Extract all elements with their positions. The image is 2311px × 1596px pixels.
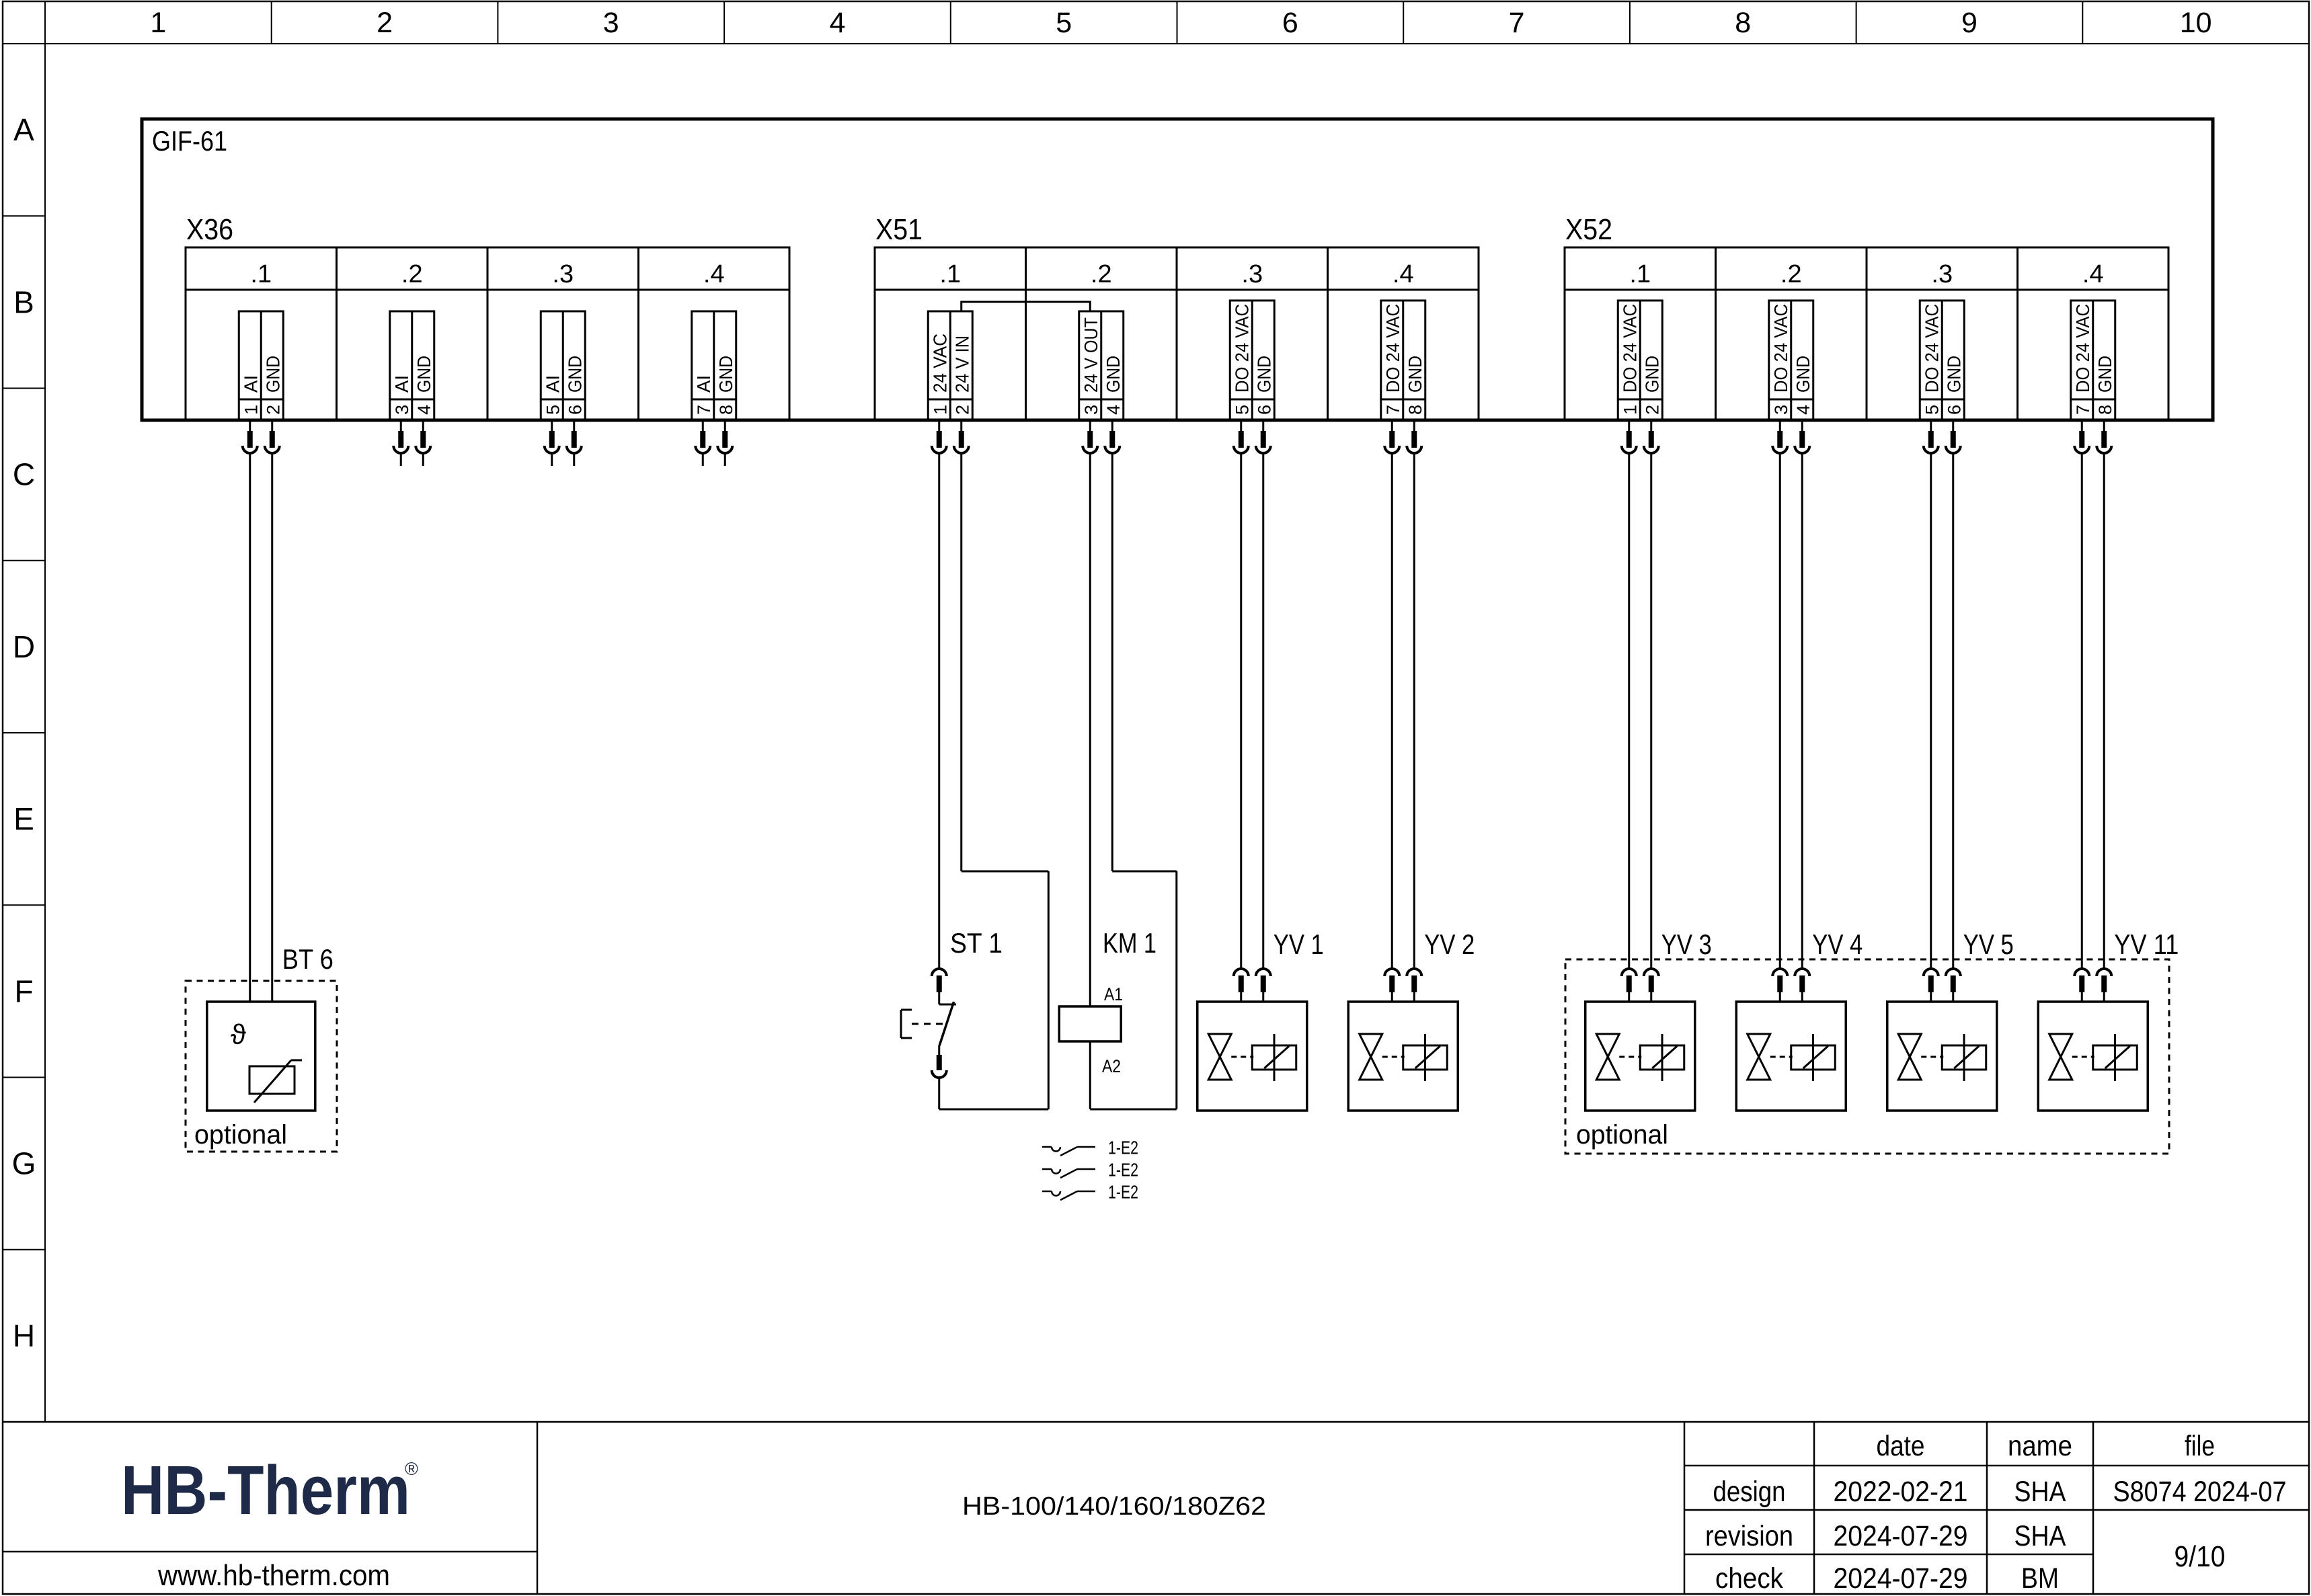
- svg-text:2024-07-29: 2024-07-29: [1834, 1562, 1968, 1595]
- svg-text:6: 6: [1282, 7, 1298, 39]
- svg-text:10: 10: [2180, 7, 2212, 39]
- svg-text:.2: .2: [1091, 260, 1112, 288]
- svg-text:E: E: [13, 801, 34, 836]
- svg-text:D: D: [13, 629, 35, 664]
- svg-text:BT 6: BT 6: [282, 943, 334, 975]
- svg-text:2022-02-21: 2022-02-21: [1834, 1476, 1968, 1508]
- svg-text:.4: .4: [1393, 260, 1414, 288]
- svg-text:A2: A2: [1102, 1056, 1121, 1076]
- svg-text:3: 3: [1081, 405, 1101, 415]
- svg-text:HB-100/140/160/180Z62: HB-100/140/160/180Z62: [962, 1492, 1266, 1521]
- svg-text:design: design: [1713, 1476, 1786, 1508]
- svg-text:GND: GND: [1943, 356, 1964, 393]
- svg-text:.4: .4: [703, 260, 725, 288]
- svg-text:X36: X36: [186, 213, 233, 246]
- svg-text:H: H: [13, 1318, 35, 1353]
- svg-text:2024-07-29: 2024-07-29: [1834, 1520, 1968, 1552]
- svg-text:5: 5: [1232, 405, 1252, 415]
- svg-text:DO 24 VAC: DO 24 VAC: [1921, 304, 1942, 393]
- svg-text:A1: A1: [1104, 984, 1123, 1004]
- svg-text:7: 7: [694, 405, 714, 415]
- svg-text:YV 1: YV 1: [1274, 928, 1324, 960]
- svg-text:A: A: [13, 112, 34, 147]
- svg-text:5: 5: [1056, 7, 1072, 39]
- svg-text:.1: .1: [939, 260, 961, 288]
- svg-text:4: 4: [829, 7, 845, 39]
- svg-text:6: 6: [565, 405, 585, 415]
- svg-text:24 V IN: 24 V IN: [951, 335, 972, 393]
- svg-text:.4: .4: [2082, 260, 2104, 288]
- svg-text:.1: .1: [250, 260, 272, 288]
- svg-text:AI: AI: [693, 375, 714, 393]
- svg-text:GND: GND: [414, 356, 434, 393]
- svg-text:X51: X51: [875, 213, 923, 246]
- svg-text:GND: GND: [1253, 356, 1274, 393]
- svg-text:®: ®: [405, 1459, 418, 1479]
- svg-text:optional: optional: [1576, 1120, 1668, 1150]
- svg-text:24 VAC: 24 VAC: [929, 333, 950, 393]
- svg-text:SHA: SHA: [2014, 1520, 2066, 1552]
- svg-text:2: 2: [1642, 405, 1662, 415]
- svg-text:4: 4: [1103, 405, 1124, 415]
- svg-text:24 V OUT: 24 V OUT: [1081, 317, 1101, 393]
- svg-text:X52: X52: [1565, 213, 1612, 246]
- svg-text:F: F: [14, 973, 33, 1008]
- svg-text:YV 5: YV 5: [1963, 928, 2014, 960]
- svg-text:4: 4: [414, 405, 434, 415]
- svg-text:.2: .2: [401, 260, 423, 288]
- svg-text:AI: AI: [240, 375, 261, 393]
- svg-text:2: 2: [952, 405, 972, 415]
- svg-text:GIF-61: GIF-61: [152, 125, 227, 157]
- svg-text:1: 1: [1620, 405, 1640, 415]
- svg-text:2: 2: [377, 7, 393, 39]
- svg-text:GND: GND: [262, 356, 283, 393]
- svg-text:8: 8: [716, 405, 736, 415]
- svg-text:5: 5: [1922, 405, 1942, 415]
- svg-text:GND: GND: [2094, 356, 2115, 393]
- svg-text:3: 3: [392, 405, 412, 415]
- svg-text:HB-Therm: HB-Therm: [121, 1451, 410, 1529]
- svg-text:3: 3: [603, 7, 619, 39]
- svg-text:.1: .1: [1629, 260, 1651, 288]
- svg-text:GND: GND: [1405, 356, 1425, 393]
- svg-text:1-E2: 1-E2: [1108, 1138, 1138, 1158]
- svg-text:8: 8: [1735, 7, 1751, 39]
- svg-text:.3: .3: [552, 260, 574, 288]
- svg-text:.2: .2: [1780, 260, 1802, 288]
- svg-text:7: 7: [2073, 405, 2093, 415]
- svg-text:2: 2: [263, 405, 283, 415]
- svg-text:optional: optional: [194, 1120, 287, 1150]
- svg-text:GND: GND: [1103, 356, 1124, 393]
- svg-text:SHA: SHA: [2014, 1476, 2066, 1508]
- svg-text:check: check: [1715, 1562, 1783, 1595]
- svg-text:BM: BM: [2021, 1562, 2059, 1595]
- svg-text:.3: .3: [1241, 260, 1263, 288]
- svg-text:1: 1: [150, 7, 166, 39]
- svg-text:ϑ: ϑ: [231, 1019, 246, 1050]
- svg-text:8: 8: [1405, 405, 1425, 415]
- svg-text:GND: GND: [1641, 356, 1662, 393]
- svg-text:5: 5: [543, 405, 563, 415]
- svg-text:C: C: [13, 457, 35, 492]
- svg-text:DO 24 VAC: DO 24 VAC: [2072, 304, 2093, 393]
- svg-text:4: 4: [1793, 405, 1813, 415]
- svg-text:ST 1: ST 1: [950, 927, 1003, 959]
- svg-text:revision: revision: [1705, 1520, 1793, 1552]
- svg-text:DO 24 VAC: DO 24 VAC: [1770, 304, 1791, 393]
- svg-text:file: file: [2185, 1430, 2215, 1462]
- svg-text:9: 9: [1961, 7, 1977, 39]
- svg-text:3: 3: [1771, 405, 1791, 415]
- svg-text:S8074 2024-07: S8074 2024-07: [2113, 1476, 2287, 1508]
- svg-text:name: name: [2008, 1430, 2072, 1462]
- svg-text:6: 6: [1944, 405, 1964, 415]
- svg-text:KM 1: KM 1: [1103, 927, 1157, 959]
- svg-text:G: G: [12, 1146, 36, 1181]
- svg-text:GND: GND: [564, 356, 585, 393]
- svg-text:B: B: [13, 284, 34, 319]
- svg-text:6: 6: [1254, 405, 1274, 415]
- svg-text:1-E2: 1-E2: [1108, 1160, 1138, 1181]
- svg-text:1: 1: [930, 405, 950, 415]
- svg-text:7: 7: [1509, 7, 1525, 39]
- svg-text:AI: AI: [391, 375, 412, 393]
- svg-text:DO 24 VAC: DO 24 VAC: [1619, 304, 1640, 393]
- svg-text:.3: .3: [1931, 260, 1953, 288]
- svg-text:DO 24 VAC: DO 24 VAC: [1382, 304, 1403, 393]
- svg-text:GND: GND: [1793, 356, 1813, 393]
- svg-text:1: 1: [241, 405, 261, 415]
- svg-text:date: date: [1877, 1430, 1925, 1462]
- svg-text:9/10: 9/10: [2175, 1540, 2226, 1573]
- svg-text:YV 3: YV 3: [1661, 928, 1712, 960]
- svg-text:YV 4: YV 4: [1812, 928, 1863, 960]
- svg-text:www.hb-therm.com: www.hb-therm.com: [157, 1559, 390, 1592]
- svg-text:GND: GND: [715, 356, 736, 393]
- svg-text:YV 11: YV 11: [2114, 928, 2179, 960]
- svg-text:DO 24 VAC: DO 24 VAC: [1231, 304, 1252, 393]
- svg-text:AI: AI: [542, 375, 563, 393]
- svg-text:8: 8: [2095, 405, 2115, 415]
- svg-text:7: 7: [1383, 405, 1403, 415]
- svg-text:1-E2: 1-E2: [1108, 1182, 1138, 1203]
- svg-text:YV 2: YV 2: [1424, 928, 1475, 960]
